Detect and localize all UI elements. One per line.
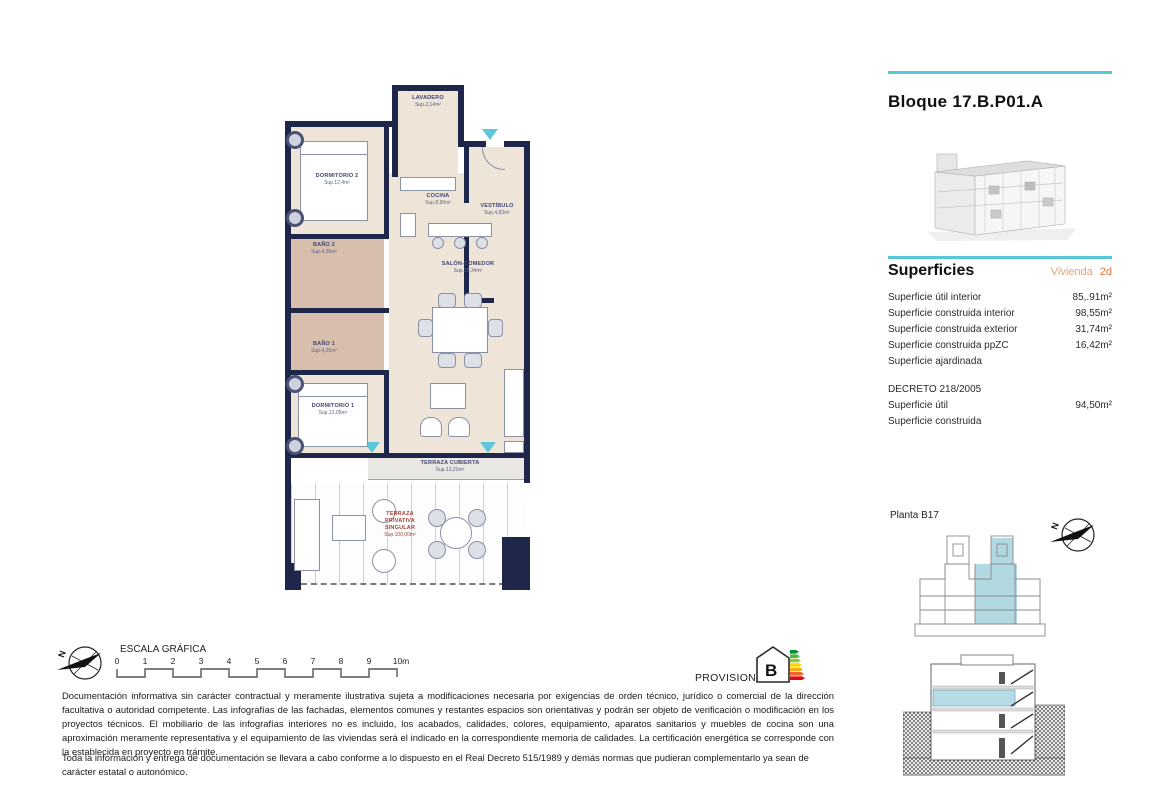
north-label: N [56,649,68,659]
wall [285,453,525,458]
table-row: Superficie ajardinada [888,353,1112,369]
highlighted-unit [991,538,1013,564]
wall [384,374,389,453]
terraza-privativa [291,483,525,585]
plant-icon [286,131,304,149]
wall [285,121,291,483]
wall [384,127,389,234]
row-label: Superficie ajardinada [888,356,982,367]
wall [392,85,398,177]
scale-bar: 0 1 2 3 4 5 6 7 8 9 10m [113,655,413,683]
tick-label: 10m [393,656,410,666]
row-value: 16,42m² [1075,340,1112,351]
superficies-header: Superficies Vivienda2d [888,262,1112,280]
wall [285,121,398,127]
highlighted-floor [933,690,1015,706]
tick-label: 1 [143,656,148,666]
kitchen-counter-icon [400,177,456,191]
chair-icon [438,353,456,368]
table-row: Superficie construida ppZC16,42m² [888,337,1112,353]
table-row: Superficie construida [888,413,1112,429]
chair-icon [468,541,486,559]
legal-paragraph-2: Toda la información y entrega de documen… [62,751,834,779]
lounge-chair-icon [372,499,396,523]
bed-icon [298,383,368,447]
building-mass [935,154,1065,235]
tick-label: 3 [199,656,204,666]
wall [524,141,530,483]
chair-icon [464,293,482,308]
chair-icon [468,509,486,527]
divider-rule [888,256,1112,259]
table-row: Superficie útil interior85,.91m² [888,289,1112,305]
row-label: Superficie construida ppZC [888,340,1009,351]
wall [464,147,469,203]
scale-ticks: 0 1 2 3 4 5 6 7 8 9 10m [115,656,410,666]
energy-rating-letter: B [765,661,777,680]
outdoor-sofa-icon [294,499,320,571]
tv-bench-icon [504,441,524,453]
tick-label: 2 [171,656,176,666]
legal-paragraph-1: Documentación informativa sin carácter c… [62,689,834,760]
row-value: 31,74m² [1075,324,1112,335]
row-label: Superficie útil [888,400,948,411]
key-plan [905,524,1055,642]
divider-rule [888,71,1112,74]
wall [285,370,389,375]
wall [285,308,389,313]
room-lavadero [398,91,458,173]
chair-icon [464,353,482,368]
table-gap [888,369,1112,381]
wall [285,234,389,239]
tick-label: 8 [339,656,344,666]
row-label: Superficie construida [888,416,981,427]
energy-certificate-icon: B [748,642,806,686]
scale-title: ESCALA GRÁFICA [120,644,206,655]
chair-icon [428,541,446,559]
pillow-line [299,384,367,397]
superficies-table: Superficie útil interior85,.91m² Superfi… [888,289,1112,429]
armchair-icon [420,417,442,437]
superficies-heading: Superficies [888,262,974,280]
stool-icon [476,237,488,249]
decreto-heading: DECRETO 218/2005 [888,381,1112,397]
tick-label: 6 [283,656,288,666]
table-row: Superficie útil94,50m² [888,397,1112,413]
chair-icon [488,319,503,337]
kitchen-bar-icon [428,223,492,237]
north-label: N [1049,521,1061,531]
sofa-icon [504,369,524,437]
vivienda-label: Vivienda [1051,266,1093,278]
chair-icon [418,319,433,337]
scale-bar-line [117,669,397,677]
terraza-cubierta [368,458,525,480]
wall [392,85,464,91]
room-bano1 [291,313,384,370]
row-value: 94,50m² [1075,400,1112,411]
tick-label: 7 [311,656,316,666]
chair-icon [438,293,456,308]
highlighted-unit [975,564,1017,624]
wall [458,85,464,147]
section-building [931,655,1035,760]
block-title: Bloque 17.B.P01.A [888,92,1043,112]
floor-plan: LAVADERO Sup.2,14m² DORMITORIO 2 Sup.12,… [280,85,530,590]
energy-bars [790,650,805,680]
tick-label: 4 [227,656,232,666]
dining-table-icon [432,307,488,353]
plant-icon [286,375,304,393]
room-bano2 [291,239,384,308]
row-label: Superficie útil interior [888,292,981,303]
armchair-icon [448,417,470,437]
plant-icon [286,437,304,455]
building-section [903,650,1065,778]
row-label: Superficie construida exterior [888,324,1018,335]
plant-icon [286,209,304,227]
tick-label: 5 [255,656,260,666]
north-compass: N [1048,512,1104,558]
row-label: Superficie construida interior [888,308,1015,319]
bed-icon [300,141,368,221]
vivienda-value: 2d [1100,266,1112,278]
table-row: Superficie construida exterior31,74m² [888,321,1112,337]
row-value: 98,55m² [1075,308,1112,319]
tick-label: 0 [115,656,120,666]
chair-icon [428,509,446,527]
coffee-table-icon [430,383,466,409]
outdoor-table-icon [332,515,366,541]
stool-icon [432,237,444,249]
window-marker-icon [480,442,496,453]
tick-label: 9 [367,656,372,666]
pillow-line [301,142,367,155]
table-row: Superficie construida interior98,55m² [888,305,1112,321]
entrance-marker-icon [482,129,498,140]
north-compass: N [55,640,111,686]
wall [502,537,530,590]
vivienda-tag: Vivienda2d [1051,266,1112,278]
lounge-chair-icon [372,549,396,573]
stool-icon [454,237,466,249]
planta-label: Planta B17 [890,510,939,521]
building-render [915,136,1090,244]
row-value: 85,.91m² [1073,292,1112,303]
stove-icon [400,213,416,237]
